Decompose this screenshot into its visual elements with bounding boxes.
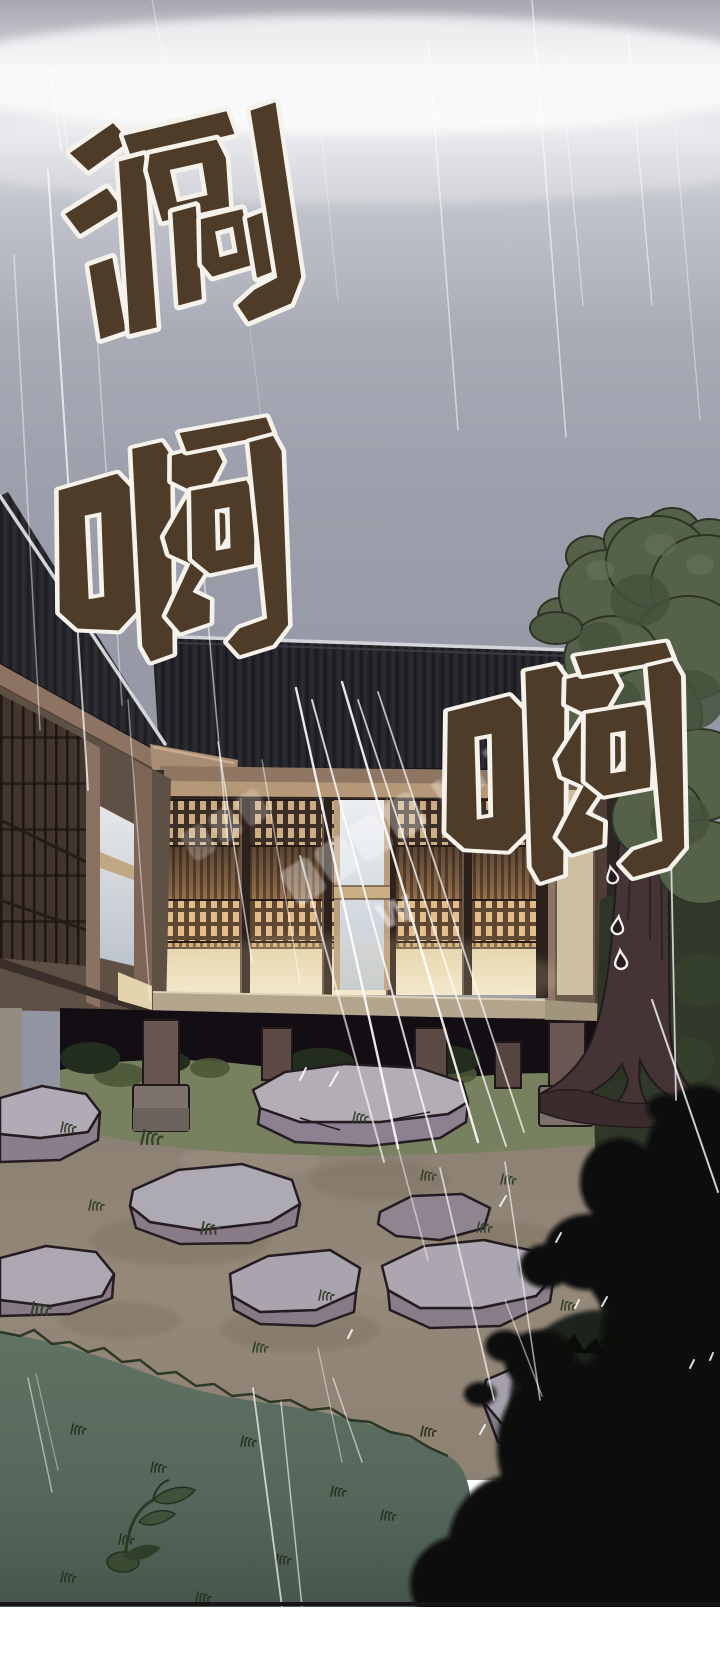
scene-art: mai W xyxy=(0,0,720,1607)
left-pale-window xyxy=(100,806,134,966)
post-1 xyxy=(143,1020,179,1090)
panel-bottom-border xyxy=(0,1602,720,1606)
comic-panel: mai W xyxy=(0,0,720,1607)
comic-page: mai W 涮 啊 啊 Heavy rain falling at dusk o… xyxy=(0,0,720,1655)
footer-whitespace xyxy=(0,1607,720,1655)
sfx-shua xyxy=(56,101,306,341)
